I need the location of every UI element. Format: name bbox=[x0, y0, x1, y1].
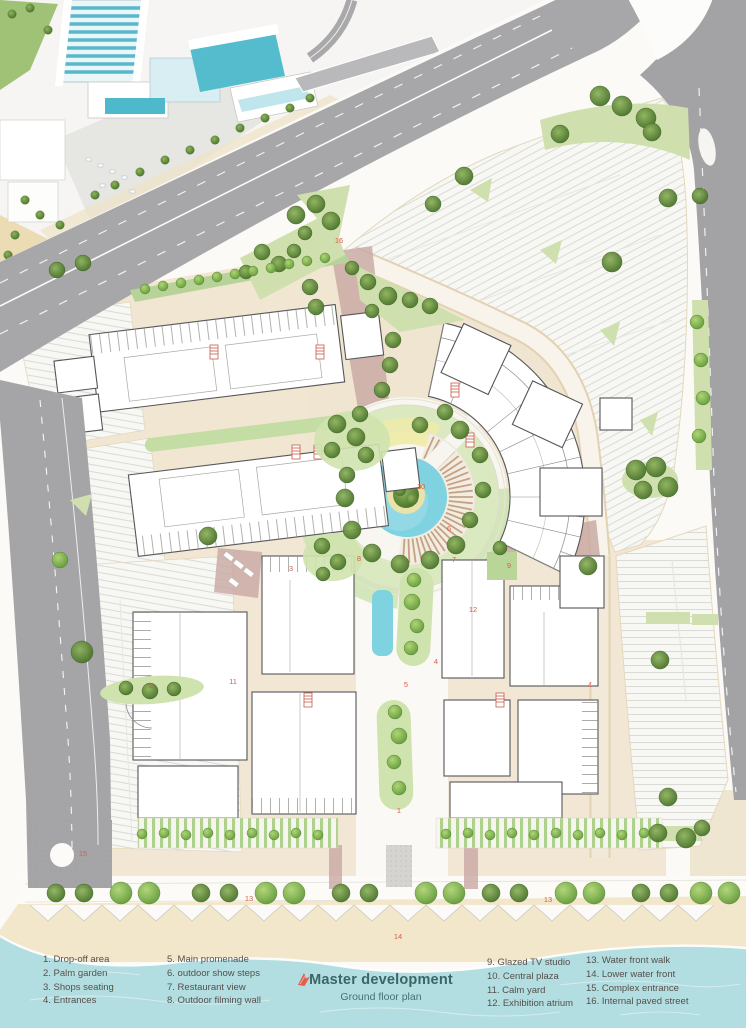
tree bbox=[694, 820, 710, 836]
stair-icon bbox=[292, 445, 300, 459]
tree bbox=[302, 256, 312, 266]
tree bbox=[330, 554, 346, 570]
tree bbox=[358, 447, 374, 463]
tree bbox=[447, 536, 465, 554]
tree bbox=[247, 828, 257, 838]
tree bbox=[455, 167, 473, 185]
tree bbox=[212, 272, 222, 282]
tree bbox=[314, 538, 330, 554]
render-tree bbox=[44, 26, 53, 35]
plan-marker: 2 bbox=[149, 681, 153, 690]
tree bbox=[485, 830, 495, 840]
tree bbox=[75, 255, 91, 271]
tree bbox=[176, 278, 186, 288]
tree bbox=[254, 244, 270, 260]
plan-marker: 12 bbox=[469, 605, 477, 614]
render-tree bbox=[186, 146, 195, 155]
tree bbox=[529, 830, 539, 840]
tree bbox=[388, 705, 402, 719]
tree bbox=[365, 304, 379, 318]
render-tree bbox=[161, 156, 170, 165]
tree bbox=[352, 406, 368, 422]
tree bbox=[138, 882, 160, 904]
render-tree bbox=[11, 231, 20, 240]
tree bbox=[660, 884, 678, 902]
tree bbox=[320, 253, 330, 263]
tree bbox=[158, 281, 168, 291]
render-tree bbox=[26, 4, 35, 13]
render-tower bbox=[55, 0, 149, 86]
tree bbox=[482, 884, 500, 902]
plan-marker: 6 bbox=[447, 524, 451, 533]
tree bbox=[626, 460, 646, 480]
tree bbox=[287, 206, 305, 224]
tree bbox=[220, 884, 238, 902]
tree bbox=[612, 96, 632, 116]
render-tree bbox=[91, 191, 100, 200]
render-tree bbox=[236, 124, 245, 133]
tree bbox=[472, 447, 488, 463]
tree bbox=[110, 882, 132, 904]
tree bbox=[374, 382, 390, 398]
render-tree bbox=[261, 114, 270, 123]
tree bbox=[284, 259, 294, 269]
tree bbox=[696, 391, 710, 405]
tree bbox=[328, 415, 346, 433]
tree bbox=[181, 830, 191, 840]
tree bbox=[298, 226, 312, 240]
tree bbox=[49, 262, 65, 278]
tree bbox=[694, 353, 708, 367]
tree bbox=[194, 275, 204, 285]
plan-marker: 4 bbox=[588, 680, 592, 689]
tree bbox=[269, 830, 279, 840]
tree bbox=[324, 442, 340, 458]
stair-icon bbox=[210, 345, 218, 359]
tree bbox=[345, 261, 359, 275]
tree bbox=[441, 829, 451, 839]
tree bbox=[347, 428, 365, 446]
tree bbox=[316, 567, 330, 581]
tree bbox=[573, 830, 583, 840]
tree bbox=[602, 252, 622, 272]
tree bbox=[718, 882, 740, 904]
tv-studio-lawn bbox=[487, 552, 517, 580]
tree bbox=[451, 421, 469, 439]
tree bbox=[676, 828, 696, 848]
tree bbox=[493, 541, 507, 555]
tree bbox=[404, 594, 420, 610]
tree bbox=[336, 489, 354, 507]
site-plan-svg: 16106879124411523115131314 bbox=[0, 0, 746, 1028]
tree bbox=[308, 299, 324, 315]
tree bbox=[313, 830, 323, 840]
tree bbox=[392, 781, 406, 795]
plan-marker: 13 bbox=[245, 894, 253, 903]
tree bbox=[167, 682, 181, 696]
tree bbox=[658, 477, 678, 497]
tree bbox=[71, 641, 93, 663]
tree bbox=[159, 828, 169, 838]
tree bbox=[391, 728, 407, 744]
tree bbox=[410, 619, 424, 633]
plan-marker: 14 bbox=[394, 932, 402, 941]
promenade-pool bbox=[372, 590, 393, 656]
plan-marker: 11 bbox=[229, 677, 237, 686]
roundabout-circle bbox=[50, 843, 74, 867]
render-tree bbox=[306, 94, 315, 103]
plan-marker: 9 bbox=[507, 561, 511, 570]
plan-marker: 5 bbox=[404, 680, 408, 689]
masterplan-canvas: 16106879124411523115131314 1. Drop-off a… bbox=[0, 0, 746, 1028]
tree bbox=[52, 552, 68, 568]
tree bbox=[225, 830, 235, 840]
tree bbox=[462, 512, 478, 528]
tree bbox=[402, 292, 418, 308]
tree bbox=[266, 263, 276, 273]
tree bbox=[363, 544, 381, 562]
stair-icon bbox=[496, 693, 504, 707]
tree bbox=[407, 573, 421, 587]
tree bbox=[302, 279, 318, 295]
tree bbox=[659, 189, 677, 207]
tree bbox=[437, 404, 453, 420]
tree bbox=[391, 555, 409, 573]
tree bbox=[307, 195, 325, 213]
render-tree bbox=[36, 211, 45, 220]
render-tree bbox=[56, 221, 65, 230]
tree bbox=[203, 828, 213, 838]
render-tree bbox=[8, 10, 17, 19]
tree bbox=[651, 651, 669, 669]
render-tree bbox=[136, 168, 145, 177]
plan-marker: 7 bbox=[452, 555, 456, 564]
stair-icon bbox=[451, 383, 459, 397]
stair-icon bbox=[304, 693, 312, 707]
tree bbox=[659, 788, 677, 806]
tree bbox=[415, 882, 437, 904]
tree bbox=[463, 828, 473, 838]
plan-marker: 15 bbox=[79, 849, 87, 858]
tree bbox=[475, 482, 491, 498]
tree bbox=[248, 266, 258, 276]
tree bbox=[412, 417, 428, 433]
tree bbox=[643, 123, 661, 141]
tree bbox=[387, 755, 401, 769]
tree bbox=[47, 884, 65, 902]
render-tree bbox=[286, 104, 295, 113]
tree bbox=[507, 828, 517, 838]
tree bbox=[343, 521, 361, 539]
plan-marker: 1 bbox=[397, 806, 401, 815]
tree bbox=[283, 882, 305, 904]
plan-marker: 16 bbox=[335, 236, 343, 245]
tree bbox=[140, 284, 150, 294]
tree bbox=[192, 884, 210, 902]
tree bbox=[291, 828, 301, 838]
tree bbox=[339, 467, 355, 483]
plan-marker: 4 bbox=[434, 657, 438, 666]
render-tree bbox=[21, 196, 30, 205]
tree bbox=[379, 287, 397, 305]
tree bbox=[421, 551, 439, 569]
tree bbox=[690, 882, 712, 904]
tree bbox=[199, 527, 217, 545]
tree bbox=[690, 315, 704, 329]
tree bbox=[360, 884, 378, 902]
tree bbox=[551, 125, 569, 143]
tree bbox=[404, 641, 418, 655]
tree bbox=[422, 298, 438, 314]
render-tree bbox=[211, 136, 220, 145]
tree bbox=[634, 481, 652, 499]
tree bbox=[332, 884, 350, 902]
tree bbox=[75, 884, 93, 902]
tree bbox=[579, 557, 597, 575]
plan-marker: 8 bbox=[357, 554, 361, 563]
tree bbox=[595, 828, 605, 838]
tree bbox=[555, 882, 577, 904]
tree bbox=[360, 274, 376, 290]
tree bbox=[692, 429, 706, 443]
tree bbox=[632, 884, 650, 902]
tree bbox=[137, 829, 147, 839]
tree bbox=[646, 457, 666, 477]
tree bbox=[692, 188, 708, 204]
tree bbox=[551, 828, 561, 838]
tree bbox=[119, 681, 133, 695]
plan-marker: 10 bbox=[417, 482, 425, 491]
tree bbox=[583, 882, 605, 904]
tree bbox=[590, 86, 610, 106]
tree bbox=[385, 332, 401, 348]
plan-marker: 13 bbox=[544, 895, 552, 904]
plan-marker: 3 bbox=[289, 564, 293, 573]
stair-icon bbox=[316, 345, 324, 359]
tree bbox=[617, 830, 627, 840]
tree bbox=[510, 884, 528, 902]
render-tree bbox=[111, 181, 120, 190]
tree bbox=[322, 212, 340, 230]
tree bbox=[382, 357, 398, 373]
tree bbox=[255, 882, 277, 904]
tree bbox=[649, 824, 667, 842]
tree bbox=[287, 244, 301, 258]
tree bbox=[639, 828, 649, 838]
tree bbox=[443, 882, 465, 904]
tree bbox=[230, 269, 240, 279]
tree bbox=[425, 196, 441, 212]
